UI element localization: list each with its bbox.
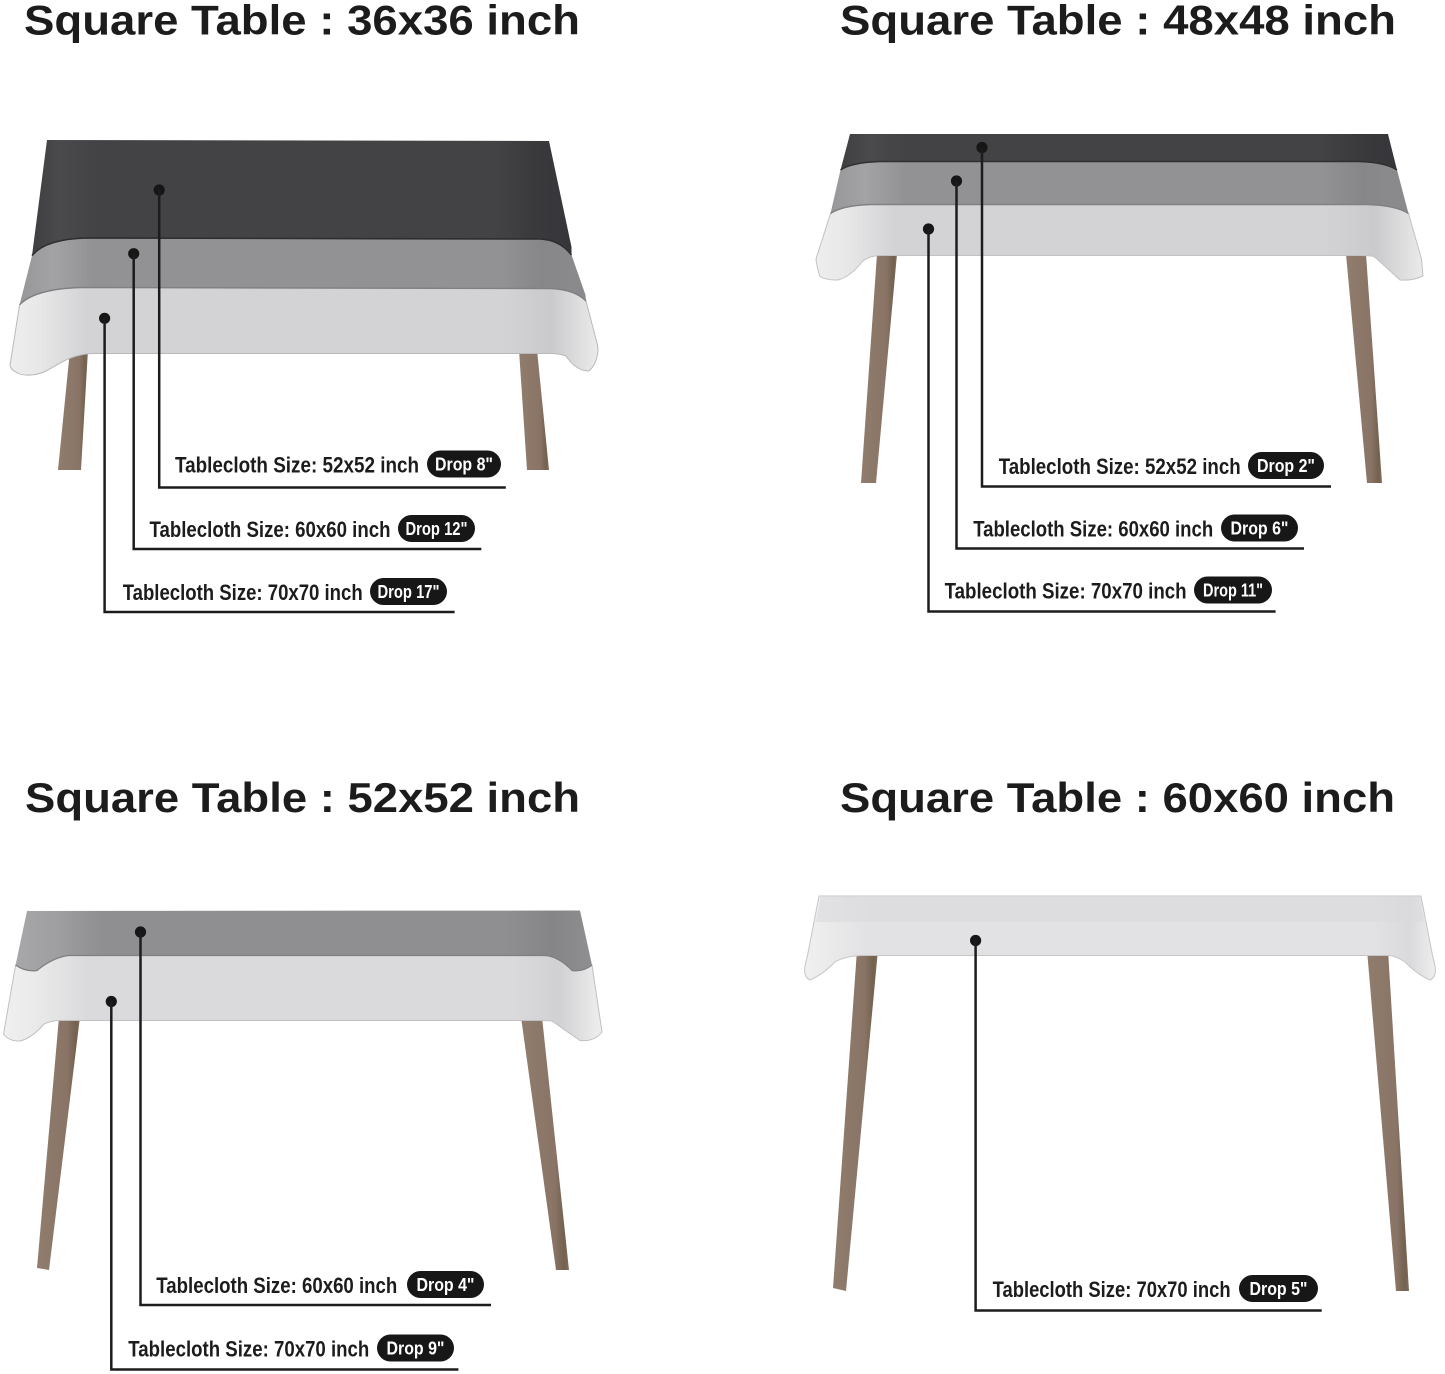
svg-text:Tablecloth Size: 70x70 inch: Tablecloth Size: 70x70 inch — [993, 1277, 1231, 1302]
svg-text:Drop 12": Drop 12" — [406, 518, 468, 539]
svg-text:Drop 9": Drop 9" — [387, 1338, 445, 1359]
svg-text:Square Table : 60x60 inch: Square Table : 60x60 inch — [840, 774, 1395, 821]
svg-text:Square Table : 36x36 inch: Square Table : 36x36 inch — [24, 0, 580, 44]
svg-text:Drop 8": Drop 8" — [435, 454, 493, 475]
svg-text:Drop 4": Drop 4" — [417, 1274, 475, 1295]
svg-text:Drop 11": Drop 11" — [1203, 580, 1263, 601]
svg-text:Drop 6": Drop 6" — [1231, 518, 1289, 539]
svg-text:Drop 5": Drop 5" — [1250, 1278, 1308, 1299]
svg-text:Tablecloth Size: 52x52 inch: Tablecloth Size: 52x52 inch — [175, 453, 419, 478]
svg-text:Tablecloth Size: 70x70 inch: Tablecloth Size: 70x70 inch — [945, 579, 1187, 604]
svg-text:Tablecloth Size: 70x70 inch: Tablecloth Size: 70x70 inch — [123, 580, 363, 605]
svg-text:Square Table : 48x48 inch: Square Table : 48x48 inch — [840, 0, 1396, 44]
svg-text:Drop 2": Drop 2" — [1257, 455, 1315, 476]
svg-text:Tablecloth Size: 60x60 inch: Tablecloth Size: 60x60 inch — [150, 517, 391, 542]
svg-text:Drop 17": Drop 17" — [378, 581, 440, 602]
svg-text:Tablecloth Size: 52x52 inch: Tablecloth Size: 52x52 inch — [999, 454, 1241, 479]
svg-text:Tablecloth Size: 60x60 inch: Tablecloth Size: 60x60 inch — [973, 517, 1213, 542]
svg-text:Tablecloth Size: 70x70 inch: Tablecloth Size: 70x70 inch — [128, 1337, 369, 1362]
svg-text:Tablecloth Size: 60x60 inch: Tablecloth Size: 60x60 inch — [156, 1273, 397, 1298]
svg-text:Square Table : 52x52 inch: Square Table : 52x52 inch — [25, 774, 580, 821]
